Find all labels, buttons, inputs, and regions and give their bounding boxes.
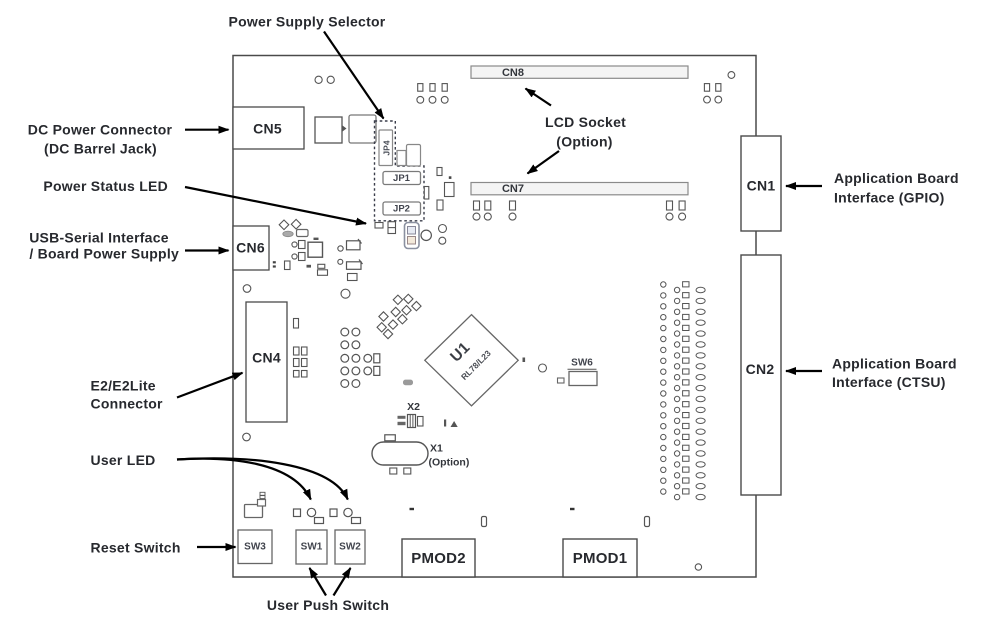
- svg-text:CN5: CN5: [253, 121, 282, 137]
- svg-text:E2/E2Lite: E2/E2Lite: [91, 378, 156, 394]
- svg-text:Power Status LED: Power Status LED: [43, 178, 168, 194]
- svg-text:Power Supply Selector: Power Supply Selector: [229, 14, 386, 30]
- svg-text:USB-Serial Interface: USB-Serial Interface: [29, 230, 169, 246]
- svg-text:User Push Switch: User Push Switch: [267, 597, 389, 613]
- svg-text:X2: X2: [407, 401, 420, 413]
- svg-text:Interface (CTSU): Interface (CTSU): [832, 374, 946, 390]
- svg-text:SW3: SW3: [244, 541, 266, 552]
- svg-text:/ Board Power Supply: / Board Power Supply: [29, 245, 179, 261]
- svg-text:Interface (GPIO): Interface (GPIO): [834, 190, 945, 206]
- svg-text:Application Board: Application Board: [834, 170, 959, 186]
- svg-text:PMOD2: PMOD2: [411, 550, 466, 567]
- svg-text:(DC Barrel Jack): (DC Barrel Jack): [44, 141, 157, 157]
- svg-text:CN4: CN4: [252, 350, 281, 366]
- svg-text:(Option): (Option): [429, 457, 470, 469]
- svg-text:CN7: CN7: [502, 183, 524, 195]
- svg-text:Reset Switch: Reset Switch: [91, 539, 181, 555]
- svg-text:JP4: JP4: [381, 140, 391, 155]
- svg-text:SW6: SW6: [571, 358, 593, 369]
- svg-text:Connector: Connector: [91, 396, 164, 412]
- svg-text:CN2: CN2: [746, 361, 775, 377]
- svg-text:JP2: JP2: [393, 203, 410, 214]
- svg-text:CN8: CN8: [502, 67, 524, 79]
- svg-text:CN6: CN6: [236, 240, 265, 256]
- svg-text:X1: X1: [430, 443, 443, 455]
- svg-text:User LED: User LED: [91, 452, 156, 468]
- svg-text:Application Board: Application Board: [832, 356, 957, 372]
- svg-text:JP1: JP1: [393, 173, 411, 184]
- svg-text:LCD Socket: LCD Socket: [545, 114, 626, 130]
- svg-text:CN1: CN1: [747, 178, 776, 194]
- svg-text:DC Power Connector: DC Power Connector: [28, 122, 173, 138]
- svg-text:(Option): (Option): [556, 134, 612, 150]
- svg-text:SW2: SW2: [339, 542, 361, 553]
- svg-text:PMOD1: PMOD1: [573, 550, 628, 567]
- svg-text:SW1: SW1: [301, 542, 323, 553]
